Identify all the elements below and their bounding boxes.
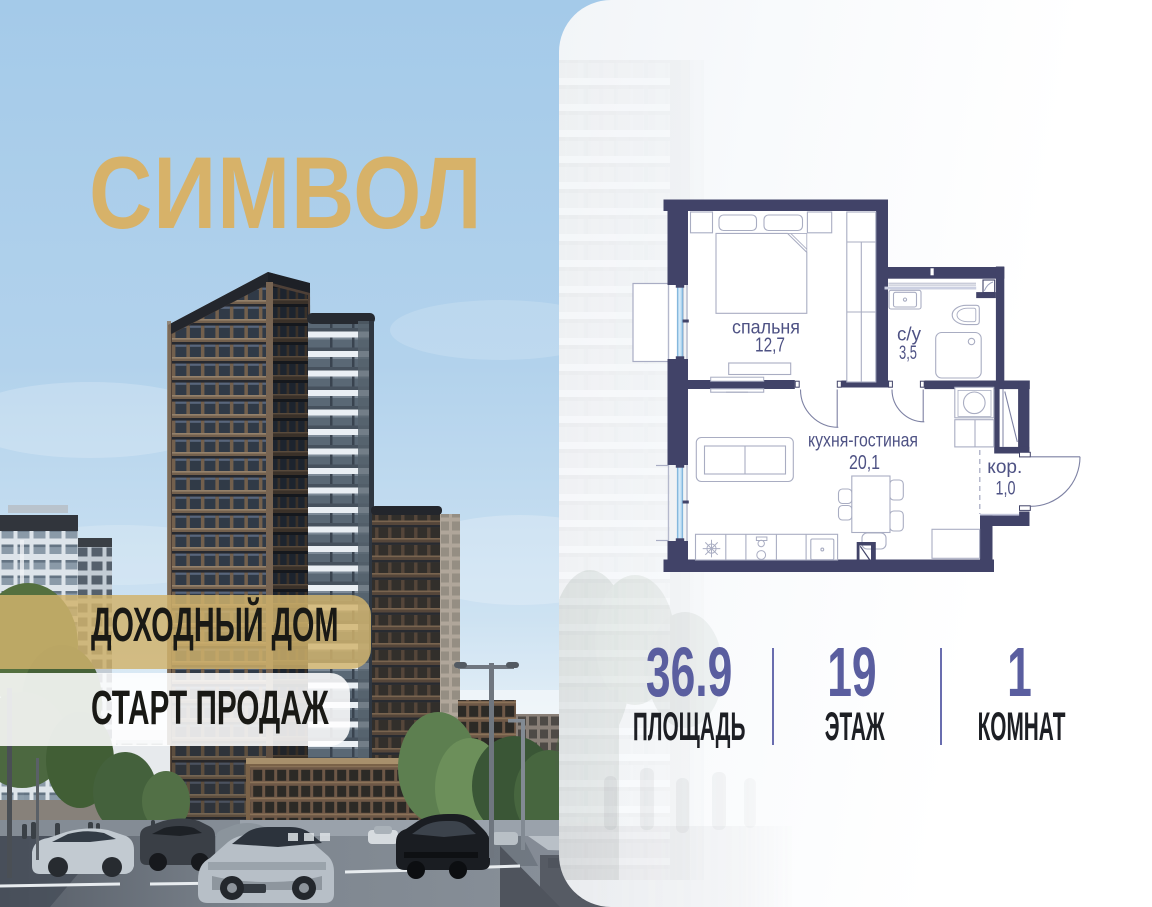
svg-text:кор.: кор. xyxy=(987,457,1022,478)
svg-text:12,7: 12,7 xyxy=(755,335,785,357)
svg-text:20,1: 20,1 xyxy=(849,452,880,474)
svg-text:кухня-гостиная: кухня-гостиная xyxy=(808,431,918,452)
svg-text:3,5: 3,5 xyxy=(899,343,917,364)
svg-text:1,0: 1,0 xyxy=(996,479,1016,500)
